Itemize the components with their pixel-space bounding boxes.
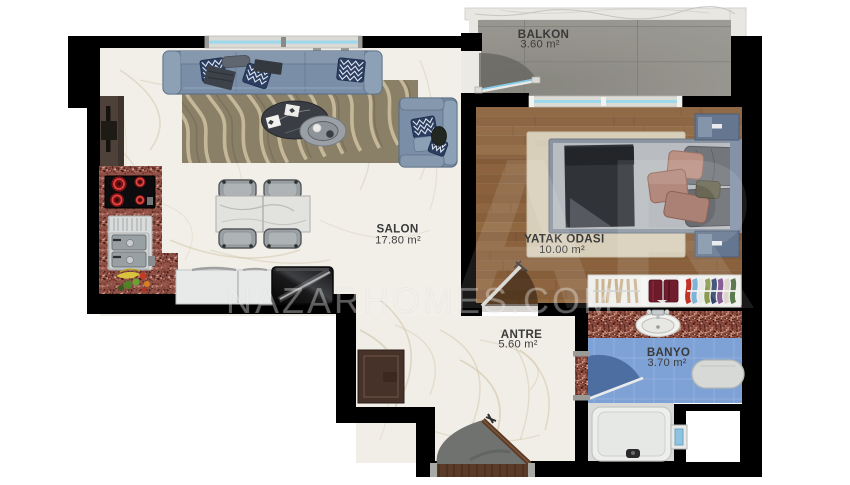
svg-text:17.80 m²: 17.80 m² xyxy=(375,235,421,247)
svg-text:NAZARHOMES.COM: NAZARHOMES.COM xyxy=(226,280,616,321)
svg-text:3.60 m²: 3.60 m² xyxy=(520,39,559,51)
svg-text:3.70 m²: 3.70 m² xyxy=(647,357,686,369)
